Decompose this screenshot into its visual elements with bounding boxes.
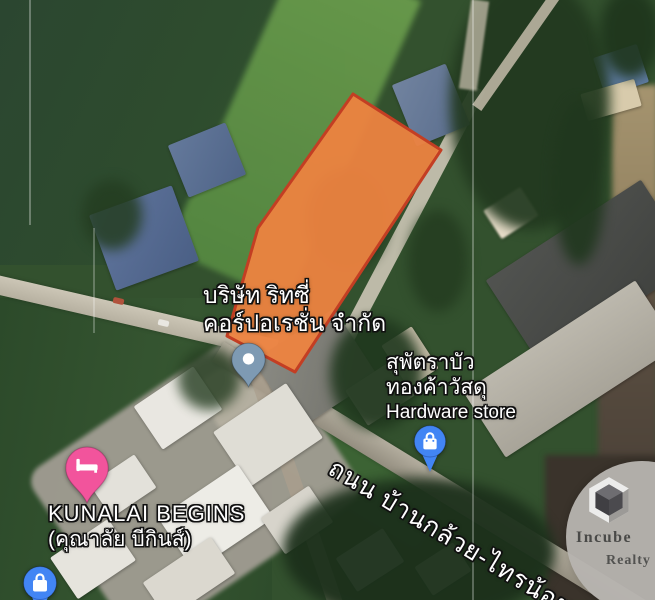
watermark-suffix-text: Realty bbox=[606, 553, 651, 569]
kunalai-label[interactable]: KUNALAI BEGINS (คุณาลัย บีกินส์) bbox=[48, 501, 245, 553]
company-label[interactable]: บริษัท ริทซี่ คอร์ปอเรชั่น จำกัด bbox=[203, 281, 386, 337]
hardware-store-pin[interactable] bbox=[411, 423, 449, 473]
company-label-line1: บริษัท ริทซี่ bbox=[203, 281, 386, 309]
bag-handle-dot bbox=[426, 440, 428, 442]
pin-center-dot bbox=[243, 353, 254, 364]
hardware-label-line3: Hardware store bbox=[386, 400, 516, 425]
shopping-bag-body bbox=[33, 580, 47, 592]
shop-pin-bottom-left[interactable] bbox=[20, 564, 60, 600]
bed-icon-leg bbox=[94, 468, 97, 472]
incube-cube-logo-icon bbox=[584, 475, 634, 525]
satellite-map[interactable]: บริษัท ริทซี่ คอร์ปอเรชั่น จำกัด สุพัตรา… bbox=[0, 0, 655, 600]
kunalai-label-line2: (คุณาลัย บีกินส์) bbox=[48, 527, 245, 553]
hardware-label-line2: ทองค้าวัสดุ bbox=[386, 375, 516, 400]
location-pin-icon bbox=[232, 343, 265, 387]
hardware-store-label[interactable]: สุพัตราบัว ทองค้าวัสดุ Hardware store bbox=[386, 350, 516, 425]
company-label-line2: คอร์ปอเรชั่น จำกัด bbox=[203, 309, 386, 337]
kunalai-label-line1: KUNALAI BEGINS bbox=[48, 501, 245, 527]
kunalai-hotel-pin[interactable] bbox=[64, 446, 110, 504]
bag-handle-dot bbox=[432, 440, 434, 442]
pin-balloon bbox=[66, 447, 108, 503]
hardware-label-line1: สุพัตราบัว bbox=[386, 350, 516, 375]
plot-location-pin[interactable] bbox=[231, 342, 266, 388]
shopping-bag-body bbox=[423, 439, 436, 450]
watermark-brand-text: Incube bbox=[576, 529, 632, 547]
